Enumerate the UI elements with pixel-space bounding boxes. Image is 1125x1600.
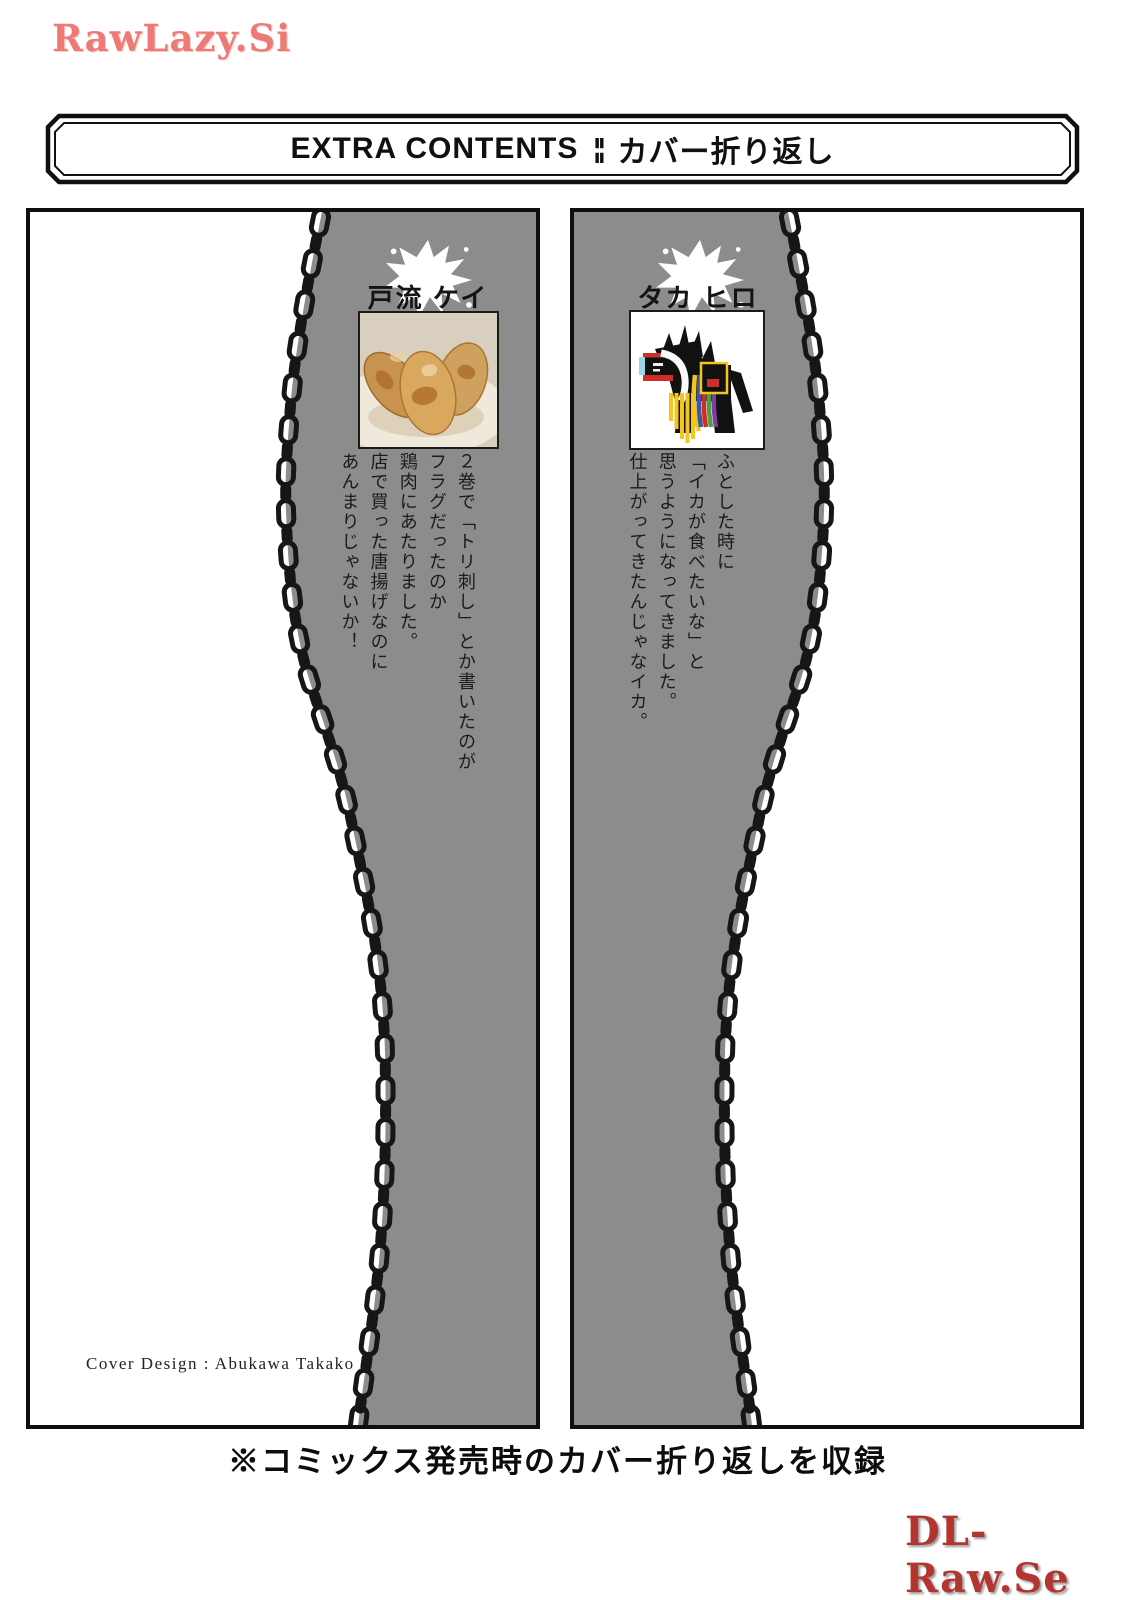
gyoza-illustration	[360, 313, 497, 447]
horse-toy-photo	[629, 310, 765, 450]
horse-toy-illustration	[631, 312, 763, 448]
header-title-en: EXTRA CONTENTS	[290, 132, 578, 166]
manga-page: RawLazy.Si EXTRA CONTENTS ¦¦ カバー折り返し	[0, 0, 1125, 1600]
header-title-jp: カバー折り返し	[618, 127, 835, 171]
cover-design-credit: Cover Design : Abukawa Takako	[86, 1354, 355, 1374]
author-comment-left: ２巻で「トリ刺し」とか書いたのが フラグだったのか 鶏肉にあたりました。 店で買…	[334, 452, 480, 922]
watermark-bottom: DL-Raw.Se	[905, 1508, 1125, 1600]
gyoza-photo	[358, 311, 499, 449]
header-text: EXTRA CONTENTS ¦¦ カバー折り返し	[45, 113, 1080, 185]
watermark-top: RawLazy.Si	[52, 16, 291, 60]
author-name-left: 戸流 ケイ	[368, 278, 489, 315]
panel-author-left: 戸流 ケイ	[26, 208, 540, 1429]
header-separator: ¦¦	[593, 133, 602, 164]
header-title-box: EXTRA CONTENTS ¦¦ カバー折り返し	[45, 113, 1080, 185]
footer-note: ※コミックス発売時のカバー折り返しを収録	[0, 1436, 1115, 1481]
author-comment-right: ふとした時に 「イカが食べたいな」と 思うようになってきました。 仕上がってきた…	[622, 452, 739, 922]
panel-author-right: タカ ヒロ	[570, 208, 1084, 1429]
